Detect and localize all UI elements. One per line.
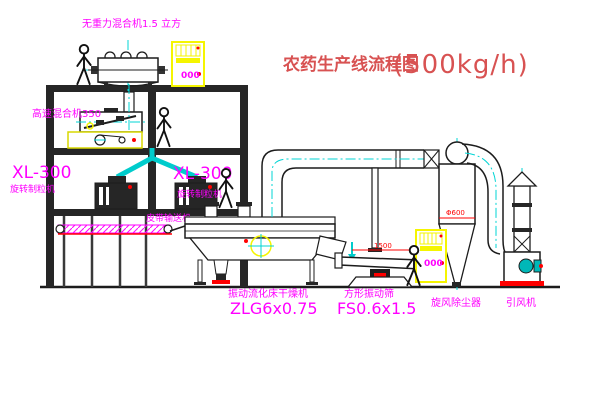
screen-model-label: FS0.6x1.5: [337, 299, 416, 318]
control-cabinet-1: 000: [172, 42, 204, 86]
dryer-model-label: ZLG6x0.75: [230, 299, 318, 318]
cyclone-diameter-dim: Φ600: [446, 209, 465, 217]
screen-length-dim: 1500: [374, 242, 392, 250]
zero-gravity-mixer: [86, 40, 170, 112]
cabinet-2-display: 000: [424, 259, 443, 269]
diagram-capacity: (500kg/h): [393, 50, 529, 80]
granulator-left-model: XL-300: [12, 163, 71, 183]
process-flow-diagram: 农药生产线流程图 (500kg/h) 无重力混合机1.5 立方: [0, 0, 600, 403]
drawing-canvas: 农药生产线流程图 (500kg/h) 无重力混合机1.5 立方: [0, 0, 600, 403]
worker-figure-floor3: [219, 169, 232, 207]
fluid-bed-dryer: [185, 202, 335, 285]
granulator-left: [95, 176, 137, 209]
induced-draft-fan: [500, 252, 544, 286]
zero-gravity-mixer-label: 无重力混合机1.5 立方: [82, 17, 181, 30]
granulator-left-name: 旋转制粒机: [10, 183, 55, 195]
control-cabinet-2: 000: [416, 230, 446, 282]
high-speed-mixer-label: 高速混合机350: [32, 107, 101, 120]
fan-label: 引风机: [506, 296, 536, 309]
dryer-to-cyclone-duct: [262, 150, 432, 217]
worker-figure-floor2: [157, 108, 170, 146]
duct-support: [368, 168, 382, 252]
granulator-right-name: 旋转制粒机: [177, 188, 222, 200]
worker-figure-roof: [77, 45, 90, 84]
cyclone-label: 旋风除尘器: [431, 296, 481, 309]
cabinet-1-display: 000: [181, 71, 200, 81]
belt-conveyor-label: 皮带输送机: [146, 212, 191, 224]
